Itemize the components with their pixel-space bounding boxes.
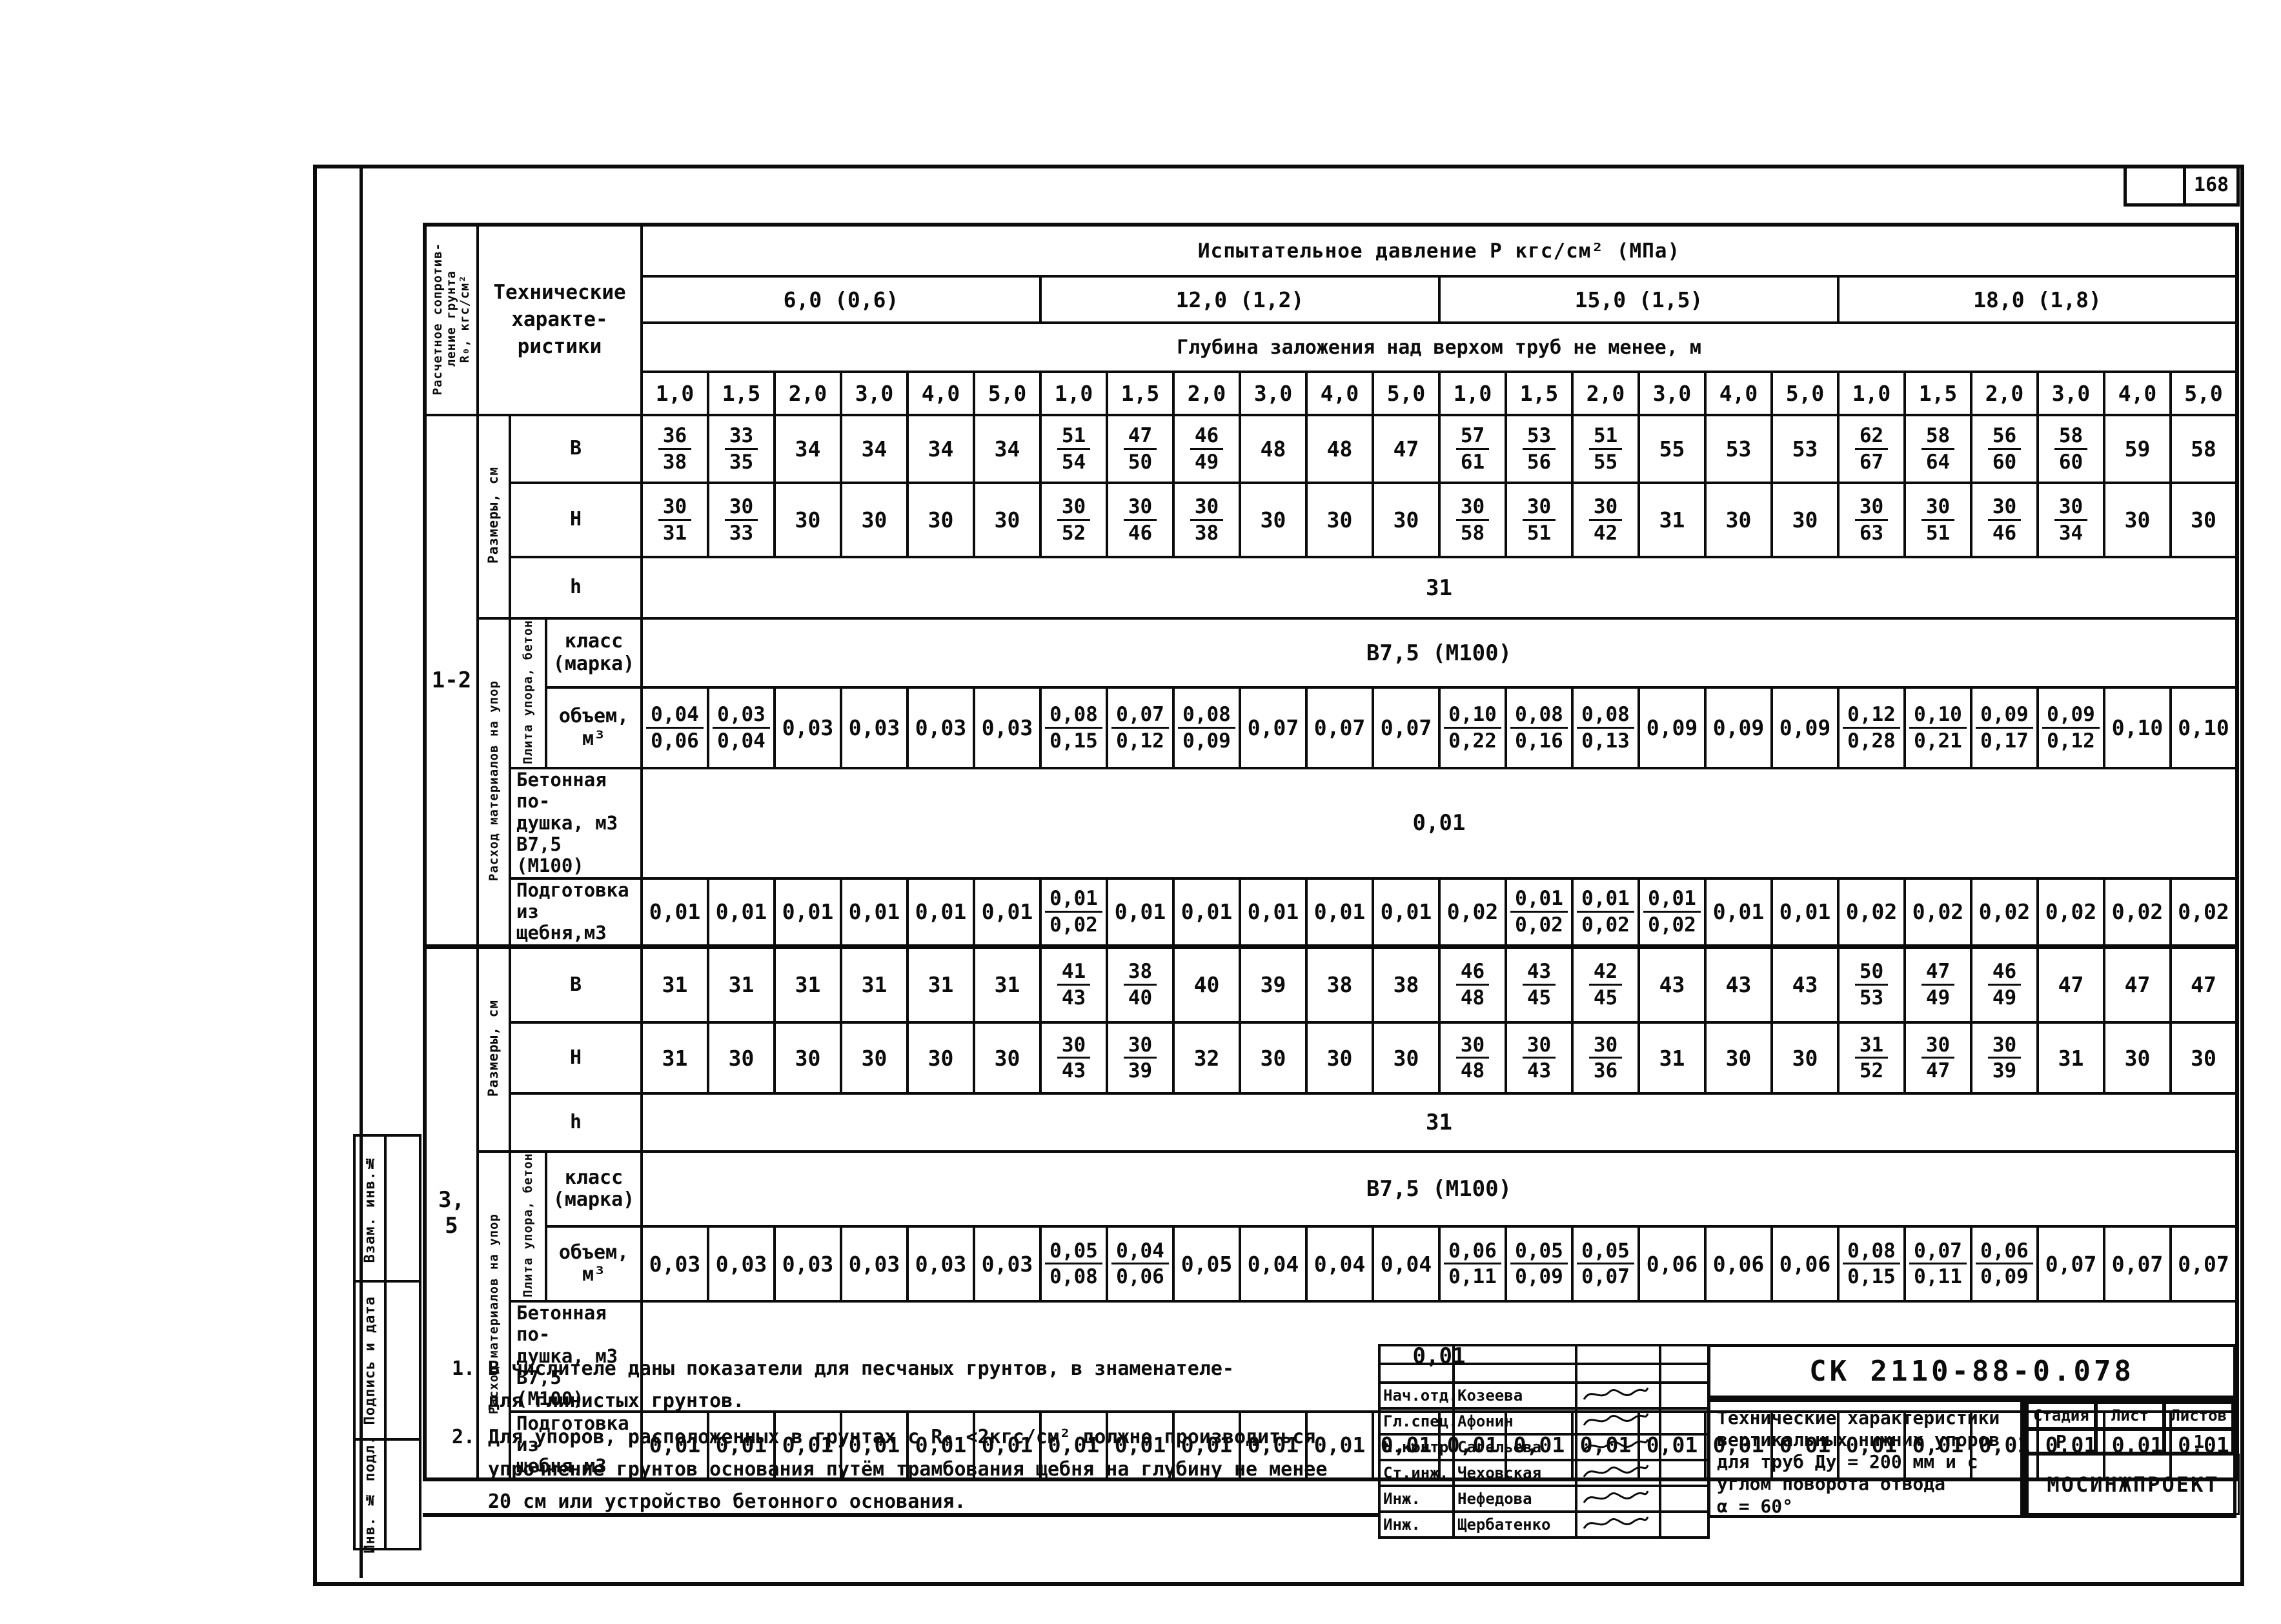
note-1-number: 1. [452,1353,488,1417]
stamp-blank-cell [387,1134,421,1283]
depth-col: 2,0 [1173,372,1240,415]
cell-H: 30 [708,1022,775,1093]
cell-volume: 0,03 [907,1226,974,1301]
cell-volume: 0,040,06 [642,687,708,767]
row-label-podushka: Бетонная по-душка, м3В7,5 (М100) [510,768,642,878]
cell-podgotovka: 0,02 [1905,878,1971,947]
signature-name: Афонин [1454,1408,1576,1434]
cell-H: 3033 [708,483,775,557]
cell-volume: 0,070,11 [1905,1226,1971,1301]
cell-podgotovka: 0,010,02 [1040,878,1107,947]
row-label-klass: класс(марка) [546,618,642,687]
margin-stamps: Взам. инв.№ Подпись и дата Инв. № подл. [353,1134,421,1550]
depth-col: 5,0 [1373,372,1439,415]
cell-H: 31 [1639,1022,1705,1093]
drawing-sheet: 168 Взам. инв.№ Подпись и дата Инв. № по… [0,0,2281,1624]
cell-volume: 0,03 [841,1226,907,1301]
cell-H: 30 [2171,1022,2237,1093]
signature-grid: Нач.отд.КозееваГл.спец.АфонинН.контр.Саг… [1378,1344,1707,1518]
stamp-row: Подпись и дата [353,1283,421,1441]
depth-col: 2,0 [1572,372,1639,415]
cell-volume: 0,07 [2038,1226,2104,1301]
revision-empty-cell [1576,1364,1660,1383]
cell-B: 5860 [2038,415,2104,483]
signature-mark [1576,1434,1660,1460]
stage-value-stadia: Р [2027,1429,2096,1454]
cell-H: 3048 [1439,1022,1506,1093]
cell-H: 3036 [1572,1022,1639,1093]
cell-volume: 0,040,06 [1107,1226,1173,1301]
cell-podgotovka: 0,02 [2104,878,2171,947]
depth-col: 4,0 [2104,372,2171,415]
signature-date-cell [1660,1408,1708,1434]
notes: 1. В числителе даны показатели для песча… [452,1353,1375,1522]
cell-volume: 0,070,12 [1107,687,1173,767]
note-1: 1. В числителе даны показатели для песча… [452,1353,1375,1417]
cell-podgotovka: 0,01 [775,878,841,947]
depth-col: 3,0 [1639,372,1705,415]
cell-B: 58 [2171,415,2237,483]
signature-mark [1576,1383,1660,1408]
cell-B: 31 [642,946,708,1022]
cell-B: 38 [1373,946,1439,1022]
cell-B: 4749 [1905,946,1971,1022]
cell-B: 31 [708,946,775,1022]
cell-H: 3043 [1040,1022,1107,1093]
title-block: Нач.отд.КозееваГл.спец.АфонинН.контр.Саг… [1378,1344,2236,1518]
cell-H: 3047 [1905,1022,1971,1093]
cell-B: 53 [1772,415,1838,483]
cell-H: 3063 [1838,483,1905,557]
depth-col: 1,0 [642,372,708,415]
cell-B: 43 [1639,946,1705,1022]
cell-podgotovka: 0,02 [1971,878,2038,947]
depth-col: 5,0 [2171,372,2237,415]
signature-date-cell [1660,1512,1708,1538]
stage-header-listov: Листов [2164,1402,2233,1429]
cell-B: 34 [841,415,907,483]
cell-B: 31 [974,946,1040,1022]
cell-h-span: 31 [642,1093,2237,1152]
pressure-group-4: 18,0 (1,8) [1838,276,2237,323]
cell-podgotovka: 0,02 [1439,878,1506,947]
cell-volume: 0,10 [2104,687,2171,767]
row-label-klass: класс(марка) [546,1152,642,1226]
row-label-H: Н [510,1022,642,1093]
cell-podgotovka: 0,01 [708,878,775,947]
cell-H: 30 [1772,1022,1838,1093]
depth-col: 1,5 [1107,372,1173,415]
cell-B: 34 [775,415,841,483]
depth-col: 3,0 [2038,372,2104,415]
cell-H: 30 [841,483,907,557]
signature-role: Нач.отд. [1379,1383,1454,1408]
signature-date-cell [1660,1460,1708,1486]
signature-role: Гл.спец. [1379,1408,1454,1434]
depth-col: 3,0 [1240,372,1306,415]
signature-name: Щербатенко [1454,1512,1576,1538]
cell-volume: 0,060,11 [1439,1226,1506,1301]
cell-B: 4648 [1439,946,1506,1022]
cell-volume: 0,07 [1306,687,1373,767]
signature-table: Нач.отд.КозееваГл.спец.АфонинН.контр.Саг… [1378,1344,1710,1539]
cell-volume: 0,04 [1240,1226,1306,1301]
depth-col: 2,0 [1971,372,2038,415]
cell-B: 34 [907,415,974,483]
cell-H: 3031 [642,483,708,557]
cell-H: 3058 [1439,483,1506,557]
depth-col: 1,5 [1506,372,1572,415]
cell-H: 3051 [1905,483,1971,557]
cell-H: 3051 [1506,483,1572,557]
depth-col: 2,0 [775,372,841,415]
cell-B: 5864 [1905,415,1971,483]
cell-B: 34 [974,415,1040,483]
signature-role: Инж. [1379,1486,1454,1512]
signature-date-cell [1660,1486,1708,1512]
row-label-podgotovka: Подготовкаиз щебня,м3 [510,878,642,947]
note-1-text: В числителе даны показатели для песчаных… [488,1353,1375,1417]
cell-volume: 0,030,04 [708,687,775,767]
cell-H: 30 [1705,1022,1772,1093]
signature-name: Чеховская [1454,1460,1576,1486]
note-2-text: Для упоров, расположенных в грунтах с R₀… [488,1421,1375,1518]
cell-volume: 0,10 [2171,687,2237,767]
cell-B: 48 [1240,415,1306,483]
cell-volume: 0,100,22 [1439,687,1506,767]
cell-volume: 0,03 [642,1226,708,1301]
stamp-blank-cell [387,1283,421,1441]
cell-B: 40 [1173,946,1240,1022]
cell-H: 31 [1639,483,1705,557]
signature-mark [1576,1512,1660,1538]
cell-B: 53 [1705,415,1772,483]
cell-podgotovka: 0,01 [1107,878,1173,947]
cell-H: 30 [2171,483,2237,557]
cell-podgotovka: 0,010,02 [1639,878,1705,947]
cell-H: 30 [841,1022,907,1093]
cell-volume: 0,03 [841,687,907,767]
revision-empty-cell [1454,1364,1576,1383]
cell-B: 3840 [1107,946,1173,1022]
page-number-box: 168 [2124,167,2240,207]
cell-H: 30 [907,483,974,557]
cell-B: 59 [2104,415,2171,483]
cell-B: 5154 [1040,415,1107,483]
cell-B: 5155 [1572,415,1639,483]
cell-B: 5053 [1838,946,1905,1022]
cell-podgotovka: 0,010,02 [1506,878,1572,947]
cell-H: 3152 [1838,1022,1905,1093]
cell-B: 4345 [1506,946,1572,1022]
pressure-group-1: 6,0 (0,6) [642,276,1040,323]
cell-volume: 0,06 [1772,1226,1838,1301]
cell-podgotovka: 0,01 [1240,878,1306,947]
cell-volume: 0,06 [1639,1226,1705,1301]
plita-label: Плита упора, бетон [510,1152,546,1301]
corner-label: Техническиехаракте-ристики [478,225,642,415]
cell-B: 3335 [708,415,775,483]
cell-volume: 0,03 [974,1226,1040,1301]
cell-volume: 0,050,08 [1040,1226,1107,1301]
cell-B: 3638 [642,415,708,483]
cell-volume: 0,09 [1772,687,1838,767]
page-number-empty-cell [2124,167,2183,207]
cell-B: 6267 [1838,415,1905,483]
pressure-group-2: 12,0 (1,2) [1040,276,1439,323]
cell-B: 4245 [1572,946,1639,1022]
depth-col: 5,0 [1772,372,1838,415]
cell-B: 43 [1705,946,1772,1022]
cell-volume: 0,05 [1173,1226,1240,1301]
cell-B: 31 [841,946,907,1022]
cell-volume: 0,07 [1373,687,1439,767]
cell-H: 30 [1240,1022,1306,1093]
stage-header-row: Стадия Лист Листов [2027,1402,2233,1429]
cell-B: 43 [1772,946,1838,1022]
stamp-vzam: Взам. инв.№ [353,1134,387,1283]
cell-volume: 0,120,28 [1838,687,1905,767]
cell-H: 30 [1705,483,1772,557]
cell-H: 3038 [1173,483,1240,557]
cell-H: 30 [974,483,1040,557]
depth-col: 4,0 [1705,372,1772,415]
signature-role: Н.контр. [1379,1434,1454,1460]
cell-H: 31 [2038,1022,2104,1093]
pressure-header: Испытательное давление Р кгс/см² (МПа) [642,225,2237,276]
signature-name: Нефедова [1454,1486,1576,1512]
revision-empty-cell [1576,1345,1660,1364]
cell-H: 3034 [2038,483,2104,557]
cell-volume: 0,080,09 [1173,687,1240,767]
cell-volume: 0,04 [1373,1226,1439,1301]
cell-H: 3039 [1971,1022,2038,1093]
cell-H: 3046 [1107,483,1173,557]
razmery-label: Размеры, см [478,415,510,618]
cell-klass-span: В7,5 (М100) [642,618,2237,687]
cell-volume: 0,050,09 [1506,1226,1572,1301]
depth-col: 1,5 [1905,372,1971,415]
cell-H: 3052 [1040,483,1107,557]
cell-h-span: 31 [642,557,2237,618]
cell-volume: 0,080,15 [1040,687,1107,767]
cell-volume: 0,09 [1705,687,1772,767]
depth-col: 1,5 [708,372,775,415]
cell-H: 30 [1373,483,1439,557]
cell-volume: 0,080,13 [1572,687,1639,767]
depth-col: 4,0 [907,372,974,415]
stamp-blank-cell [387,1441,421,1550]
cell-H: 30 [1306,1022,1373,1093]
cell-podgotovka: 0,01 [1705,878,1772,947]
stage-value-row: Р 1 [2027,1429,2233,1454]
cell-volume: 0,080,15 [1838,1226,1905,1301]
depth-col: 1,0 [1040,372,1107,415]
row-label-h: h [510,1093,642,1152]
cell-H: 30 [775,483,841,557]
cell-volume: 0,07 [2171,1226,2237,1301]
cell-H: 30 [1373,1022,1439,1093]
cell-H: 30 [775,1022,841,1093]
depth-col: 5,0 [974,372,1040,415]
cell-volume: 0,080,16 [1506,687,1572,767]
soil-resistance-value: 1-2 [425,415,478,946]
depth-col: 1,0 [1838,372,1905,415]
row-label-H: Н [510,483,642,557]
organization-name: МОСИНЖПРОЕКТ [2027,1454,2240,1515]
cell-H: 32 [1173,1022,1240,1093]
depth-col: 3,0 [841,372,907,415]
cell-volume: 0,090,17 [1971,687,2038,767]
cell-volume: 0,100,21 [1905,687,1971,767]
cell-podgotovka: 0,01 [1306,878,1373,947]
cell-volume: 0,07 [2104,1226,2171,1301]
cell-klass-span: В7,5 (М100) [642,1152,2237,1226]
cell-volume: 0,03 [775,1226,841,1301]
document-number: СК 2110-88-0.078 [1707,1344,2236,1399]
cell-podushka-span: 0,01 [642,768,2237,878]
cell-podgotovka: 0,010,02 [1572,878,1639,947]
cell-B: 47 [2104,946,2171,1022]
cell-H: 30 [1772,483,1838,557]
cell-podgotovka: 0,01 [841,878,907,947]
revision-empty-cell [1454,1345,1576,1364]
pressure-group-3: 15,0 (1,5) [1439,276,1838,323]
revision-empty-cell [1379,1345,1454,1364]
cell-podgotovka: 0,01 [1772,878,1838,947]
cell-B: 4750 [1107,415,1173,483]
cell-H: 3043 [1506,1022,1572,1093]
cell-volume: 0,03 [708,1226,775,1301]
cell-B: 4649 [1971,946,2038,1022]
depth-col: 4,0 [1306,372,1373,415]
row-label-B: В [510,946,642,1022]
stamp-inv-label: Инв. № подл. [362,1436,378,1554]
cell-podgotovka: 0,01 [974,878,1040,947]
row-label-h: h [510,557,642,618]
cell-B: 55 [1639,415,1705,483]
left-rotated-header: Расчетное сопротив-ление грунтаR₀, кгс/с… [425,225,478,415]
cell-podgotovka: 0,01 [1373,878,1439,947]
cell-volume: 0,050,07 [1572,1226,1639,1301]
cell-B: 5660 [1971,415,2038,483]
cell-B: 48 [1306,415,1373,483]
cell-H: 3046 [1971,483,2038,557]
cell-podgotovka: 0,01 [1173,878,1240,947]
stamp-vzam-label: Взам. инв.№ [362,1154,378,1263]
signature-date-cell [1660,1434,1708,1460]
stamp-inv: Инв. № подл. [353,1441,387,1550]
cell-volume: 0,060,09 [1971,1226,2038,1301]
stage-header-stadia: Стадия [2027,1402,2096,1429]
revision-empty-cell [1660,1364,1708,1383]
signature-role: Инж. [1379,1512,1454,1538]
page-number: 168 [2183,167,2240,207]
note-2-number: 2. [452,1421,488,1518]
row-label-volume: объем,м³ [546,1226,642,1301]
cell-podgotovka: 0,02 [2171,878,2237,947]
cell-B: 5761 [1439,415,1506,483]
rashod-label: Расход материалов на упор [478,618,510,946]
row-label-B: В [510,415,642,483]
cell-volume: 0,03 [775,687,841,767]
cell-podgotovka: 0,02 [1838,878,1905,947]
drawing-title: Технические характеристикивертикальных н… [1707,1399,2023,1518]
cell-B: 47 [2171,946,2237,1022]
cell-B: 4649 [1173,415,1240,483]
cell-volume: 0,090,12 [2038,687,2104,767]
signature-name: Сагельева [1454,1434,1576,1460]
signature-mark [1576,1408,1660,1434]
depth-header: Глубина заложения над верхом труб не мен… [642,323,2237,372]
cell-H: 3042 [1572,483,1639,557]
stage-header-list: Лист [2096,1402,2165,1429]
cell-B: 39 [1240,946,1306,1022]
note-2: 2. Для упоров, расположенных в грунтах с… [452,1421,1375,1518]
cell-volume: 0,03 [907,687,974,767]
stage-value-list [2096,1429,2165,1454]
stamp-row: Инв. № подл. [353,1441,421,1550]
signature-role: Ст.инж. [1379,1460,1454,1486]
razmery-label: Размеры, см [478,946,510,1152]
revision-empty-cell [1379,1364,1454,1383]
cell-H: 31 [642,1022,708,1093]
stamp-row: Взам. инв.№ [353,1134,421,1283]
cell-B: 38 [1306,946,1373,1022]
cell-H: 30 [2104,483,2171,557]
plita-label: Плита упора, бетон [510,618,546,768]
cell-podgotovka: 0,02 [2038,878,2104,947]
cell-B: 5356 [1506,415,1572,483]
cell-volume: 0,04 [1306,1226,1373,1301]
cell-B: 47 [2038,946,2104,1022]
row-label-volume: объем,м³ [546,687,642,767]
cell-H: 30 [974,1022,1040,1093]
cell-podgotovka: 0,01 [642,878,708,947]
depth-col: 1,0 [1439,372,1506,415]
cell-H: 30 [1306,483,1373,557]
cell-B: 31 [775,946,841,1022]
cell-volume: 0,03 [974,687,1040,767]
signature-mark [1576,1460,1660,1486]
stage-grid: Стадия Лист Листов Р 1 МОСИНЖПРОЕКТ [2023,1399,2236,1518]
stamp-podpis: Подпись и дата [353,1283,387,1441]
cell-volume: 0,09 [1639,687,1705,767]
cell-B: 4143 [1040,946,1107,1022]
signature-name: Козеева [1454,1383,1576,1408]
cell-volume: 0,06 [1705,1226,1772,1301]
stage-value-listov: 1 [2164,1429,2233,1454]
signature-mark [1576,1486,1660,1512]
cell-podgotovka: 0,01 [907,878,974,947]
cell-H: 30 [907,1022,974,1093]
characteristics-table: Расчетное сопротив-ление грунтаR₀, кгс/с… [423,223,2239,1481]
signature-date-cell [1660,1383,1708,1408]
cell-H: 3039 [1107,1022,1173,1093]
cell-B: 31 [907,946,974,1022]
stamp-podpis-label: Подпись и дата [362,1296,378,1425]
revision-empty-cell [1660,1345,1708,1364]
cell-volume: 0,07 [1240,687,1306,767]
cell-B: 47 [1373,415,1439,483]
cell-H: 30 [2104,1022,2171,1093]
cell-H: 30 [1240,483,1306,557]
